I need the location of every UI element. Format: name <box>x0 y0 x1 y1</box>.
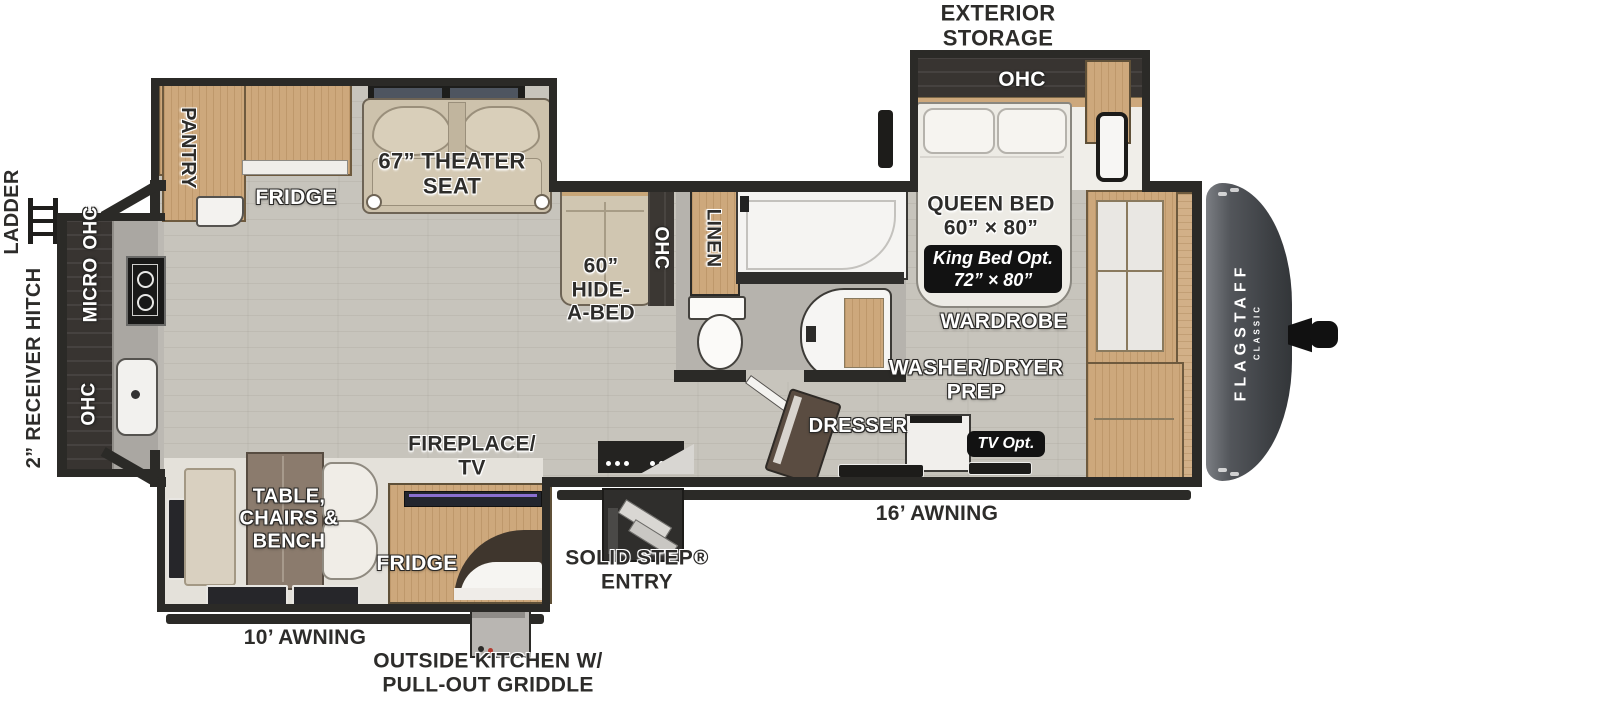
wall <box>157 604 550 612</box>
exterior-storage-label: EXTERIOR STORAGE <box>941 1 1056 50</box>
wall <box>910 50 918 192</box>
fireplace-tv-cabinet <box>388 483 552 604</box>
bedroom-window-1 <box>838 464 924 478</box>
fireplace-tv-label: FIREPLACE/ TV <box>408 432 536 479</box>
tv-option-badge: TV Opt. <box>967 431 1045 457</box>
fridge-label: FRIDGE <box>255 186 336 210</box>
kitchen-sink <box>116 358 158 436</box>
dresser-label: DRESSER <box>809 415 908 437</box>
wall <box>910 50 1150 58</box>
wall <box>151 78 557 86</box>
kitchen-ohc-upper-label: OHC <box>80 206 101 249</box>
fridge-outside-label: FRIDGE <box>376 552 457 576</box>
hitch-ball-icon <box>1310 321 1338 348</box>
awning-10-label: 10’ AWNING <box>244 626 366 650</box>
wall <box>542 480 550 612</box>
micro-label: MICRO <box>80 258 101 323</box>
table-chairs-bench-label: TABLE, CHAIRS & BENCH <box>239 485 338 552</box>
wall <box>542 477 1202 487</box>
bedroom-window-2 <box>968 462 1032 475</box>
hide-a-bed-label: 60” HIDE- A-BED <box>567 255 635 326</box>
wardrobe-label: WARDROBE <box>940 310 1067 334</box>
bath-partition-wall <box>736 272 904 284</box>
bed-slide-window-left <box>878 110 893 168</box>
ladder-label: LADDER <box>1 169 23 254</box>
bed-slide-window-right <box>1096 112 1128 182</box>
king-bed-option-badge: King Bed Opt. 72” × 80” <box>924 245 1062 293</box>
awning-16-label: 16’ AWNING <box>876 502 998 526</box>
theater-seat-label: 67” THEATER SEAT <box>378 149 525 198</box>
vanity-sink <box>800 288 892 382</box>
wall <box>151 78 159 192</box>
pantry-base-unit <box>196 196 244 227</box>
wall <box>1142 50 1150 192</box>
pantry-label: PANTRY <box>177 107 199 189</box>
queen-bed-label: QUEEN BED 60” × 80” <box>927 192 1055 239</box>
linen-label: LINEN <box>702 209 723 268</box>
wall <box>57 469 165 477</box>
wall <box>157 480 165 612</box>
dinette-bench <box>184 468 236 586</box>
wall <box>549 78 557 192</box>
wall <box>549 181 918 192</box>
fridge-counter-strip <box>242 160 348 175</box>
rv-floorplan: FLAGSTAFF CLASSIC EXTERIOR STORAGE LADDE… <box>0 0 1600 703</box>
toilet-bowl <box>697 314 743 370</box>
solid-step-entry-label: SOLID STEP® ENTRY <box>565 546 709 593</box>
washer-dryer-prep-label: WASHER/DRYER PREP <box>889 356 1063 403</box>
outside-kitchen-label: OUTSIDE KITCHEN W/ PULL-OUT GRIDDLE <box>373 649 602 696</box>
wall <box>57 213 165 221</box>
shower <box>736 190 908 280</box>
bedroom-ohc-label: OHC <box>998 68 1046 92</box>
stove-cooktop <box>126 256 166 326</box>
brand-logo-name: FLAGSTAFF <box>1233 242 1251 422</box>
sofa-ohc-label: OHC <box>650 226 671 269</box>
kitchen-ohc-lower-label: OHC <box>78 382 99 425</box>
brand-logo: FLAGSTAFF CLASSIC <box>1233 242 1262 422</box>
wall <box>1192 181 1202 487</box>
ladder-icon <box>28 198 58 244</box>
wall <box>57 213 67 477</box>
wardrobe-cabinet-upper <box>1086 190 1178 364</box>
brand-logo-series: CLASSIC <box>1253 242 1262 422</box>
receiver-hitch-label: 2” RECEIVER HITCH <box>23 268 45 469</box>
wardrobe-cabinet-lower <box>1086 362 1184 482</box>
